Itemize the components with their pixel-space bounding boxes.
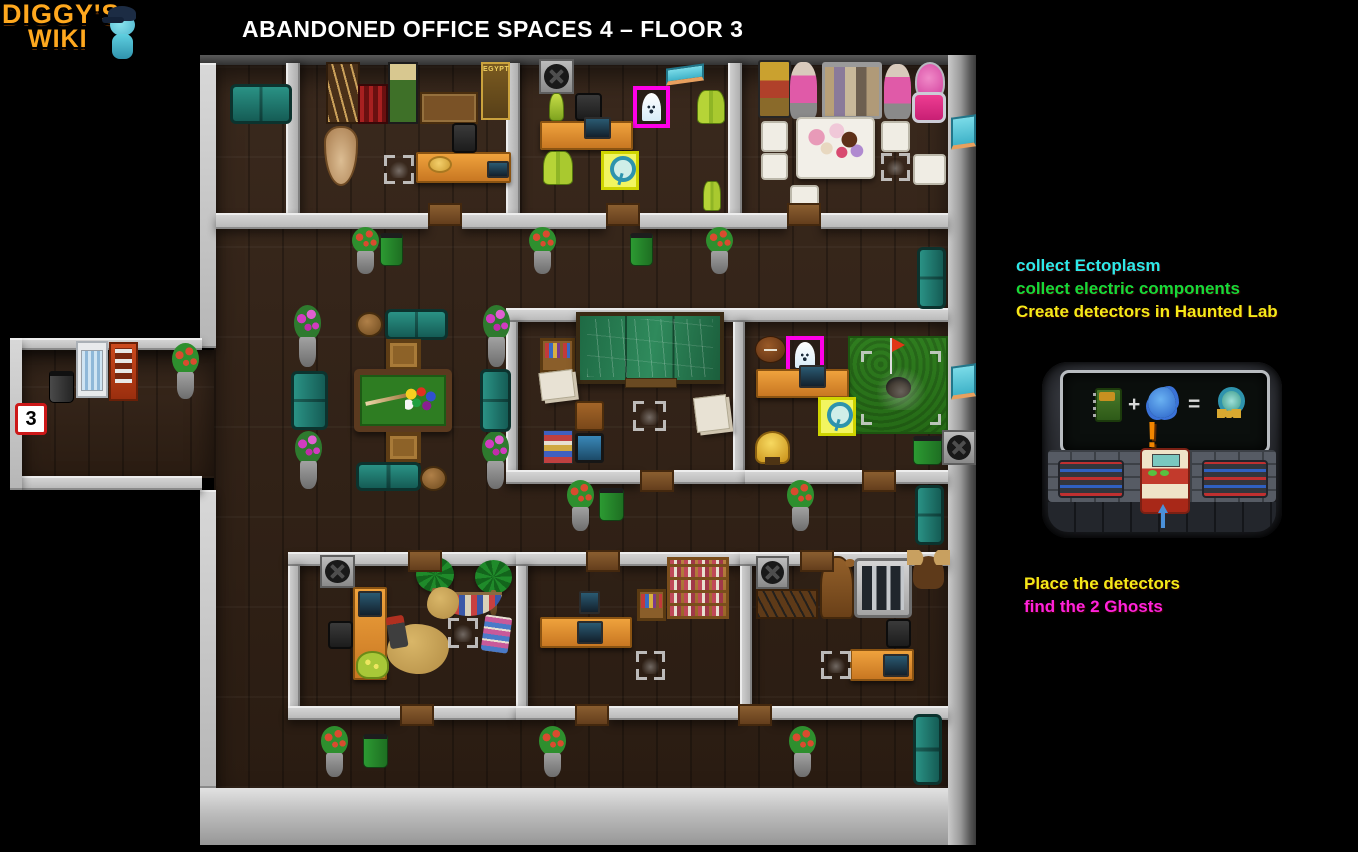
door: [800, 550, 834, 572]
hand-search-marker: [636, 651, 665, 680]
entry-arrow-icon: [1156, 504, 1170, 530]
rifle-rack: [756, 589, 818, 619]
white-chair: [761, 121, 788, 152]
beach-towel: [481, 614, 513, 653]
fan-vent: [320, 555, 355, 588]
flower-planter: [319, 726, 350, 777]
white-chair: [761, 153, 788, 180]
football: [755, 336, 786, 363]
hand-search-marker: [861, 351, 941, 425]
ectoplasm-bottles: [543, 151, 573, 185]
door: [787, 203, 821, 226]
diggy-poster: [388, 62, 418, 124]
teal-couch: [480, 369, 511, 432]
bookcase: [667, 557, 729, 619]
office-chair: [886, 619, 911, 648]
ectoplasm-bottles: [703, 181, 721, 211]
instruction-line: find the 2 Ghosts: [1024, 595, 1180, 618]
wall-segment: [216, 213, 428, 229]
flower-planter: [785, 480, 816, 531]
door: [575, 704, 609, 726]
trash-can: [49, 371, 74, 403]
fridge: [76, 341, 108, 398]
page-title: ABANDONED OFFICE SPACES 4 – FLOOR 3: [242, 16, 743, 43]
bookshelf: [540, 338, 575, 373]
flower-planter: [170, 343, 201, 399]
wall-segment: [740, 566, 752, 708]
page: DIGGY'S WIKI ABANDONED OFFICE SPACES 4 –…: [0, 0, 1358, 852]
pink-flower-planter: [292, 305, 323, 367]
equals-symbol: =: [1188, 393, 1200, 417]
red-rack: [358, 84, 388, 124]
vending-machine: [109, 342, 138, 401]
mannequin: [884, 64, 911, 119]
wall-segment: [200, 490, 216, 788]
book-stack: [543, 430, 573, 464]
office-chair: [452, 123, 477, 153]
wall-segment: [516, 706, 575, 720]
detector-recipe-panel: + = !: [1042, 362, 1282, 538]
instruction-line: Create detectors in Haunted Lab: [1016, 300, 1278, 323]
door: [738, 704, 772, 726]
teal-couch: [915, 485, 944, 545]
tea-table: [796, 117, 875, 179]
pink-armchair: [912, 92, 946, 123]
entrance-badge: 3: [15, 403, 47, 435]
trash-can: [599, 488, 624, 521]
trash-can: [363, 734, 388, 768]
ghost-detector-icon: [1214, 387, 1244, 418]
wall-segment: [516, 566, 528, 708]
computer: [584, 117, 611, 139]
wall-segment: [728, 63, 742, 215]
ghost-1: [633, 86, 670, 128]
door: [640, 470, 674, 492]
electric-component-icon: [1095, 388, 1122, 422]
quest-instructions-top: collect Ectoplasmcollect electric compon…: [1016, 254, 1278, 323]
hand-search-marker: [633, 401, 666, 431]
laptop: [487, 161, 509, 178]
wall-segment: [516, 552, 586, 566]
instruction-line: collect Ectoplasm: [1016, 254, 1278, 277]
wooden-chair: [575, 401, 604, 431]
hand-search-marker: [448, 618, 478, 648]
luggage-stack: [758, 60, 791, 118]
wall-segment: [288, 566, 300, 708]
stool: [356, 312, 383, 337]
instruction-line: collect electric components: [1016, 277, 1278, 300]
crate: [386, 432, 421, 463]
detector-1: [601, 151, 639, 190]
hand-search-marker: [881, 153, 910, 181]
teal-couch: [913, 714, 942, 785]
teal-couch: [356, 462, 421, 491]
door: [862, 470, 896, 492]
trash-can: [913, 436, 942, 465]
phone: [358, 591, 382, 617]
detector-2: [818, 397, 856, 436]
flower-planter: [565, 480, 596, 531]
chalkboard: [576, 312, 724, 384]
wall-screen: [579, 591, 600, 614]
door: [408, 550, 442, 572]
wall-segment: [200, 788, 948, 845]
paper-pile: [538, 369, 575, 401]
moose-head: [913, 556, 944, 589]
office-chair: [328, 621, 353, 649]
egypt-poster: EGYPT: [481, 62, 510, 120]
teal-couch: [291, 371, 328, 430]
flower-planter: [537, 726, 568, 777]
door: [428, 203, 462, 226]
trash-can: [380, 233, 403, 266]
pool-table: [354, 369, 452, 432]
workbench: [420, 92, 478, 124]
spear-rack: [326, 62, 360, 124]
wall-segment: [674, 470, 745, 484]
diggy-mascot-icon: [100, 6, 144, 60]
quest-instructions-bottom: Place the detectorsfind the 2 Ghosts: [1024, 572, 1180, 618]
wall-segment: [609, 706, 740, 720]
flower-planter: [527, 227, 558, 274]
stool: [420, 466, 447, 491]
tablet: [575, 433, 604, 463]
computer: [577, 621, 603, 644]
plus-symbol: +: [1128, 393, 1140, 417]
fan-vent: [539, 59, 574, 94]
door: [586, 550, 620, 572]
white-chair: [881, 121, 910, 152]
teal-couch: [230, 84, 292, 124]
fan-vent: [942, 430, 976, 465]
wall-sign: [951, 363, 976, 400]
clothes-rack: [822, 62, 882, 119]
trash-can: [630, 233, 653, 266]
cable-bundle-right: [1202, 460, 1268, 498]
pink-flower-planter: [481, 305, 512, 367]
teal-couch: [385, 309, 448, 340]
wall-segment: [821, 213, 948, 229]
pink-flower-planter: [480, 431, 511, 489]
ectoplasm-bottles: [697, 90, 725, 124]
fan-vent: [756, 556, 789, 589]
wall-segment: [506, 308, 948, 322]
gun-cabinet: [854, 558, 912, 618]
cable-bundle-left: [1058, 460, 1124, 498]
paper-pile: [693, 394, 730, 433]
trophy: [755, 431, 790, 464]
white-chair: [913, 154, 946, 185]
door: [606, 203, 640, 226]
wall-sign: [951, 114, 976, 150]
wall-segment: [288, 706, 400, 720]
mannequin: [790, 62, 817, 119]
wall-segment: [10, 476, 202, 490]
exclamation-marker: !: [1146, 414, 1158, 456]
wall-segment: [434, 706, 516, 720]
teal-couch: [917, 247, 946, 309]
instruction-line: Place the detectors: [1024, 572, 1180, 595]
ectoplasm-bottle: [549, 93, 564, 121]
flower-planter: [787, 726, 818, 777]
flower-planter: [704, 227, 735, 274]
hand-search-marker: [384, 155, 414, 184]
bag: [356, 651, 389, 679]
straw-hat: [428, 156, 452, 173]
computer: [883, 654, 909, 677]
wall-segment: [733, 322, 745, 474]
site-logo[interactable]: DIGGY'S WIKI: [2, 2, 152, 60]
pink-flower-planter: [293, 431, 324, 489]
crate: [386, 339, 421, 371]
flower-planter: [350, 227, 381, 274]
hand-search-marker: [821, 651, 851, 679]
computer: [799, 365, 826, 388]
door: [400, 704, 434, 726]
bookcase-small: [637, 589, 666, 621]
wall-segment: [896, 470, 948, 484]
wall-segment: [200, 63, 216, 348]
